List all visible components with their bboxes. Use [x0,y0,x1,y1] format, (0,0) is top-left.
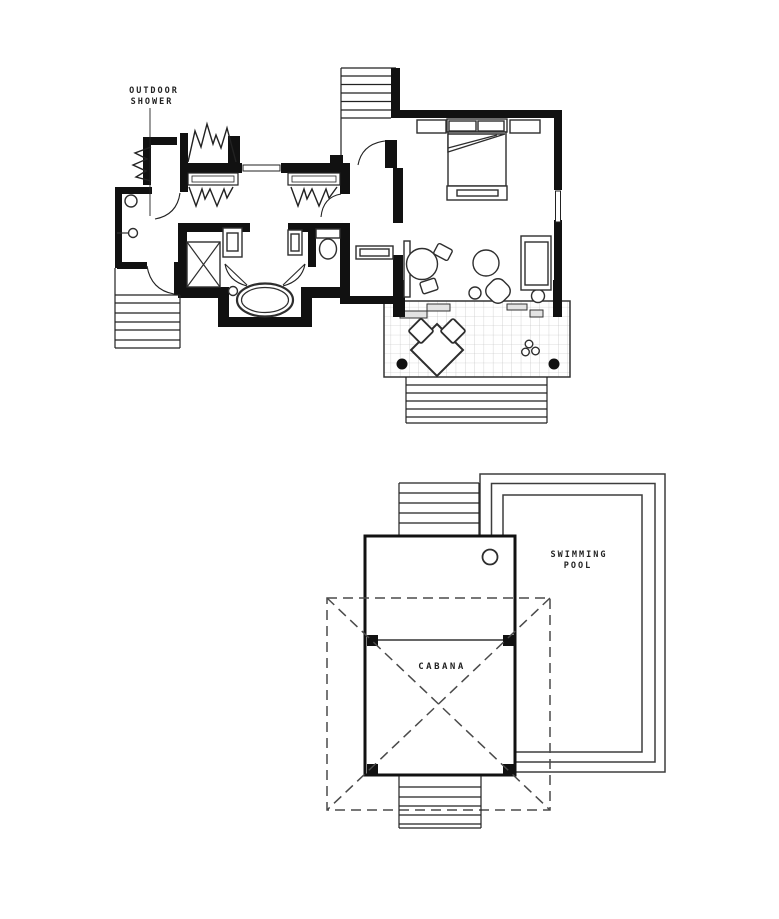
terrace-step [427,304,450,311]
corridor-door-arc [321,194,341,217]
swimming-pool-label-line2: POOL [564,561,592,571]
swimming-pool-label-line1: SWIMMING [551,550,608,560]
bathroom-bottom-wall [185,287,220,298]
cabana-label: CABANA [418,662,466,672]
side-stairs [115,268,180,348]
round-table [407,249,438,280]
outdoor-shower-label-line2: SHOWER [131,97,174,107]
cabana-post [503,764,514,775]
cabana-circle-fixture [483,550,498,565]
side-stool [532,290,545,303]
upper-plan-labels: OUTDOOR SHOWER [129,86,179,216]
bathtub [237,284,293,317]
porch-top-wall [150,137,177,145]
bedroom-window [556,191,561,222]
terrace-step [507,304,527,310]
outdoor-shower-label-line1: OUTDOOR [129,86,179,96]
bedroom-entry-door-arc [358,141,385,165]
tub-bay-bottom-wall [218,317,306,327]
toilet-bowl [320,239,337,259]
terrace-pebble [525,340,533,348]
sink-left [227,233,238,251]
corridor-top-wall [180,163,242,173]
window-sill-inner [192,176,234,182]
passage-bottom-wall [350,296,395,304]
toilet-divider-wall [308,225,316,267]
floor-plan-page: OUTDOOR SHOWER [0,0,779,919]
terrace-stairs [406,377,547,423]
bedroom-right-wall [554,110,562,190]
pillow [449,121,476,131]
bathroom-bottom-wall [310,287,347,298]
terrace [384,301,570,423]
cabana-lower-stairs [399,776,481,828]
chair [420,278,439,294]
shower-room-door-arc [147,266,174,294]
sink-right [291,234,299,251]
ottoman [473,250,499,276]
porch-door-arc [155,193,180,219]
lower-plan: SWIMMING POOL CABANA [327,474,665,828]
tub-faucet [229,287,238,296]
terrace-pebble [522,348,530,356]
stair-jamb-wall [174,262,182,295]
terrace-pebble [532,347,540,355]
shower-drain [125,195,137,207]
side-stool [469,287,481,299]
sofa-cushion [525,242,548,285]
bay-window-stub [180,133,188,192]
shower-head [129,229,138,238]
pillow [478,121,504,131]
closet-unit [417,120,446,133]
closet-unit [510,120,540,133]
bathroom-fixtures [187,228,340,317]
cabana-upper-stairs [399,483,479,536]
terrace-step [530,310,543,317]
floor-plan-drawing: OUTDOOR SHOWER [0,0,779,919]
sideboard-inner [360,249,389,256]
screen-zigzag-corridor-left [189,187,233,206]
shower-room-left-wall [115,187,122,268]
shower-room-bottom-wall [117,262,147,269]
bed-bench-cushion [457,190,498,196]
shower-room-top-wall [117,187,152,194]
terrace-door-post [553,280,562,317]
bedroom-top-wall [391,110,562,118]
toilet-tank [316,229,340,238]
bedroom-left-wall [393,255,403,282]
bedroom-door-jamb [385,140,397,168]
terrace-column-left [397,359,408,370]
upper-plan: OUTDOOR SHOWER [115,68,570,423]
screen-zigzag-corridor-right [291,187,337,206]
window-sill-inner [292,176,336,182]
terrace-column-right [549,359,560,370]
corridor-window [243,165,280,171]
bedroom-left-wall [393,168,403,223]
vestibule-wall [340,163,350,194]
